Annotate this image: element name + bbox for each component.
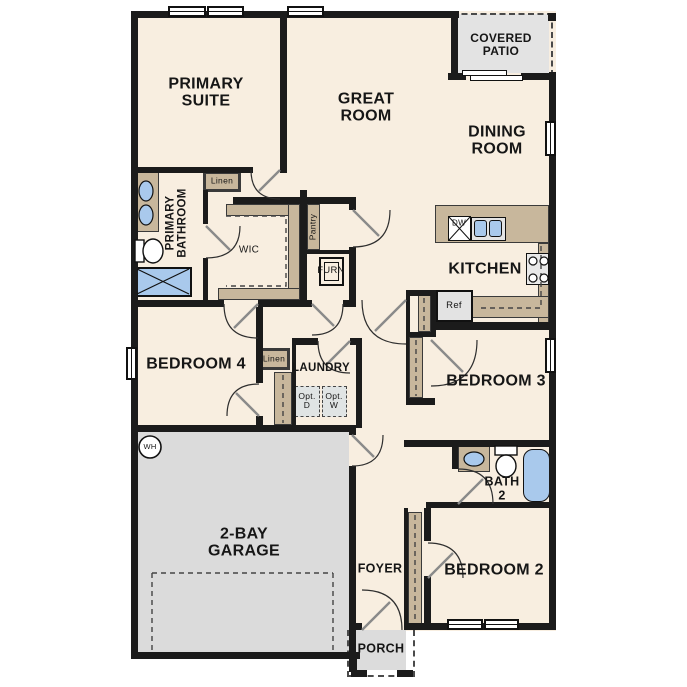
- vanity-sink: [139, 205, 153, 225]
- door-leaf: [431, 340, 463, 372]
- fixture-label-linen-bath: Linen: [211, 176, 233, 185]
- door-leaf: [234, 304, 258, 328]
- door-leaf: [259, 170, 280, 191]
- room-label-bath-2: BATH 2: [485, 476, 520, 503]
- door-leaf: [352, 435, 374, 457]
- room-label-great-room: GREAT ROOM: [338, 91, 394, 126]
- fixture-label-linen-hall: Linen: [263, 354, 285, 363]
- room-label-laundry: LAUNDRY: [292, 362, 350, 374]
- room-label-garage: 2-BAY GARAGE: [208, 526, 280, 561]
- door-leaf: [312, 304, 334, 326]
- vanity-sink: [139, 181, 153, 201]
- room-label-primary-suite: PRIMARY SUITE: [168, 76, 243, 111]
- room-label-kitchen: KITCHEN: [448, 260, 521, 277]
- fixture-details: [135, 181, 548, 477]
- room-label-wic: WIC: [239, 246, 259, 257]
- dashed-guides: [152, 216, 541, 650]
- stove-burner: [540, 274, 548, 282]
- door-leaf: [353, 210, 379, 236]
- door-leaf: [458, 479, 483, 504]
- room-label-foyer: FOYER: [358, 562, 403, 576]
- door-leaf: [375, 300, 406, 331]
- stove-burner: [529, 257, 537, 265]
- fixture-label-pantry: Pantry: [308, 214, 317, 240]
- room-label-bedroom-3: BEDROOM 3: [446, 372, 546, 389]
- door-leaf: [327, 341, 350, 364]
- toilet-bowl: [143, 239, 163, 263]
- fixture-label-optional-dryer: Opt. D: [298, 392, 315, 410]
- fixture-label-furnace: FURN: [317, 266, 345, 276]
- room-label-bedroom-4: BEDROOM 4: [146, 355, 246, 372]
- room-label-dining-room: DINING ROOM: [468, 124, 526, 159]
- shower-x-mark: [137, 269, 189, 294]
- room-label-porch: PORCH: [358, 642, 405, 656]
- room-label-covered-patio: COVERED PATIO: [470, 32, 531, 58]
- toilet-tank: [495, 446, 517, 455]
- garage-door-dashed: [152, 573, 333, 650]
- room-label-primary-bathroom: PRIMARY BATHROOM: [165, 188, 190, 257]
- stove-burner: [529, 274, 537, 282]
- fixture-label-refrigerator: Ref: [446, 301, 462, 311]
- door-leaves: [206, 170, 483, 630]
- door-leaf: [362, 602, 390, 630]
- door-leaf: [236, 393, 259, 416]
- fixture-label-water-heater: WH: [143, 443, 156, 451]
- vanity-sink: [464, 452, 484, 466]
- fixture-label-optional-washer: Opt. W: [325, 392, 342, 410]
- door-leaf: [206, 226, 230, 250]
- stove-burner: [540, 257, 548, 265]
- room-label-bedroom-2: BEDROOM 2: [444, 561, 544, 578]
- floor-plan: PRIMARY SUITE GREAT ROOM DINING ROOM COV…: [0, 0, 687, 687]
- fixture-label-dishwasher: DW: [452, 220, 466, 229]
